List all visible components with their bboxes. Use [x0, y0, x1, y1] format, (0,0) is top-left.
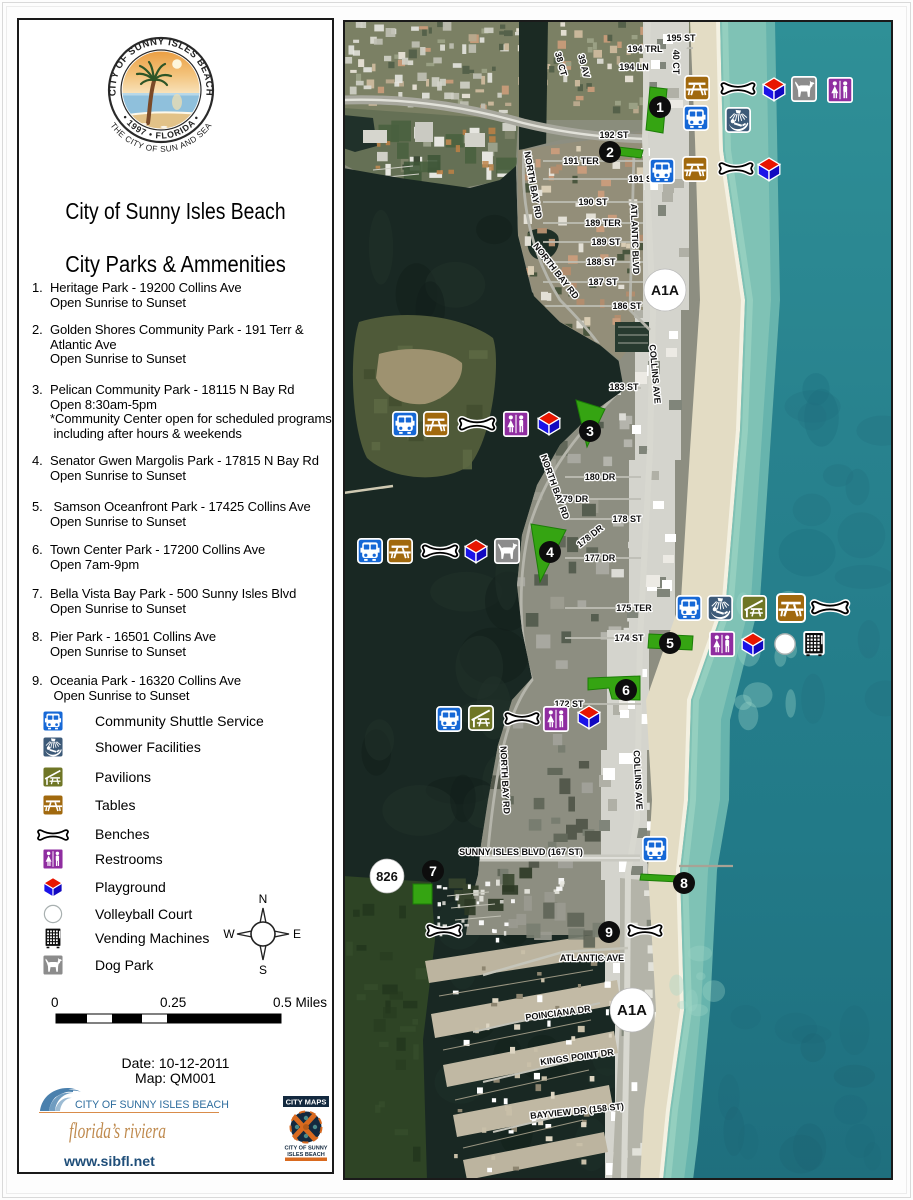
svg-text:N: N	[259, 892, 268, 906]
svg-text:Tables: Tables	[95, 797, 135, 813]
svg-text:CITY OF SUNNY ISLES BEACH: CITY OF SUNNY ISLES BEACH	[75, 1099, 229, 1111]
svg-text:177 DR: 177 DR	[585, 553, 616, 563]
svg-text:E: E	[293, 927, 301, 941]
svg-text:4: 4	[546, 544, 554, 560]
svg-text:Volleyball Court: Volleyball Court	[95, 906, 192, 922]
svg-text:190 ST: 190 ST	[578, 197, 608, 207]
svg-text:186 ST: 186 ST	[612, 301, 642, 311]
svg-text:3: 3	[586, 423, 594, 439]
svg-text:Pavilions: Pavilions	[95, 769, 151, 785]
svg-text:Community Shuttle Service: Community Shuttle Service	[95, 713, 264, 729]
svg-text:1: 1	[656, 99, 664, 115]
svg-text:0.5 Miles: 0.5 Miles	[273, 995, 327, 1010]
svg-text:A1A: A1A	[617, 1002, 647, 1019]
svg-text:192 ST: 192 ST	[599, 130, 629, 140]
svg-text:188 ST: 188 ST	[586, 257, 616, 267]
svg-text:A1A: A1A	[651, 282, 679, 298]
svg-text:2: 2	[606, 144, 614, 160]
svg-text:189 ST: 189 ST	[591, 237, 621, 247]
svg-text:ISLES BEACH: ISLES BEACH	[287, 1152, 325, 1158]
svg-text:0: 0	[51, 995, 59, 1010]
svg-text:189 TER: 189 TER	[585, 218, 621, 228]
svg-text:9: 9	[605, 924, 613, 940]
svg-text:CITY OF SUNNY: CITY OF SUNNY	[284, 1146, 327, 1152]
svg-text:178 ST: 178 ST	[612, 514, 642, 524]
svg-text:ATLANTIC AVE: ATLANTIC AVE	[560, 953, 624, 963]
svg-text:175 TER: 175 TER	[616, 603, 652, 613]
svg-text:183 ST: 183 ST	[609, 382, 639, 392]
svg-text:0.25: 0.25	[160, 995, 186, 1010]
svg-text:8: 8	[680, 875, 688, 891]
svg-text:187 ST: 187 ST	[588, 277, 618, 287]
svg-text:Benches: Benches	[95, 826, 149, 842]
svg-text:Restrooms: Restrooms	[95, 851, 163, 867]
svg-text:W: W	[223, 927, 235, 941]
svg-text:Dog Park: Dog Park	[95, 957, 154, 973]
svg-text:Playground: Playground	[95, 879, 166, 895]
svg-text:195 ST: 195 ST	[666, 33, 696, 43]
svg-text:7: 7	[429, 863, 437, 879]
svg-text:florida’s riviera: florida’s riviera	[69, 1118, 166, 1143]
svg-text:S: S	[259, 963, 267, 977]
svg-text:194 TRL: 194 TRL	[627, 44, 663, 54]
svg-text:40 CT: 40 CT	[671, 50, 681, 75]
svg-text:826: 826	[376, 869, 398, 884]
svg-text:180 DR: 180 DR	[585, 472, 616, 482]
svg-text:191 TER: 191 TER	[563, 156, 599, 166]
svg-text:SUNNY ISLES BLVD (167 ST): SUNNY ISLES BLVD (167 ST)	[459, 847, 583, 857]
svg-text:Vending Machines: Vending Machines	[95, 930, 209, 946]
svg-text:5: 5	[666, 635, 674, 651]
svg-text:174 ST: 174 ST	[614, 633, 644, 643]
svg-text:www.sibfl.net: www.sibfl.net	[63, 1154, 155, 1170]
svg-text:194 LN: 194 LN	[619, 62, 649, 72]
svg-text:CITY MAPS: CITY MAPS	[286, 1098, 327, 1107]
svg-text:Shower Facilities: Shower Facilities	[95, 739, 201, 755]
svg-text:6: 6	[622, 682, 630, 698]
